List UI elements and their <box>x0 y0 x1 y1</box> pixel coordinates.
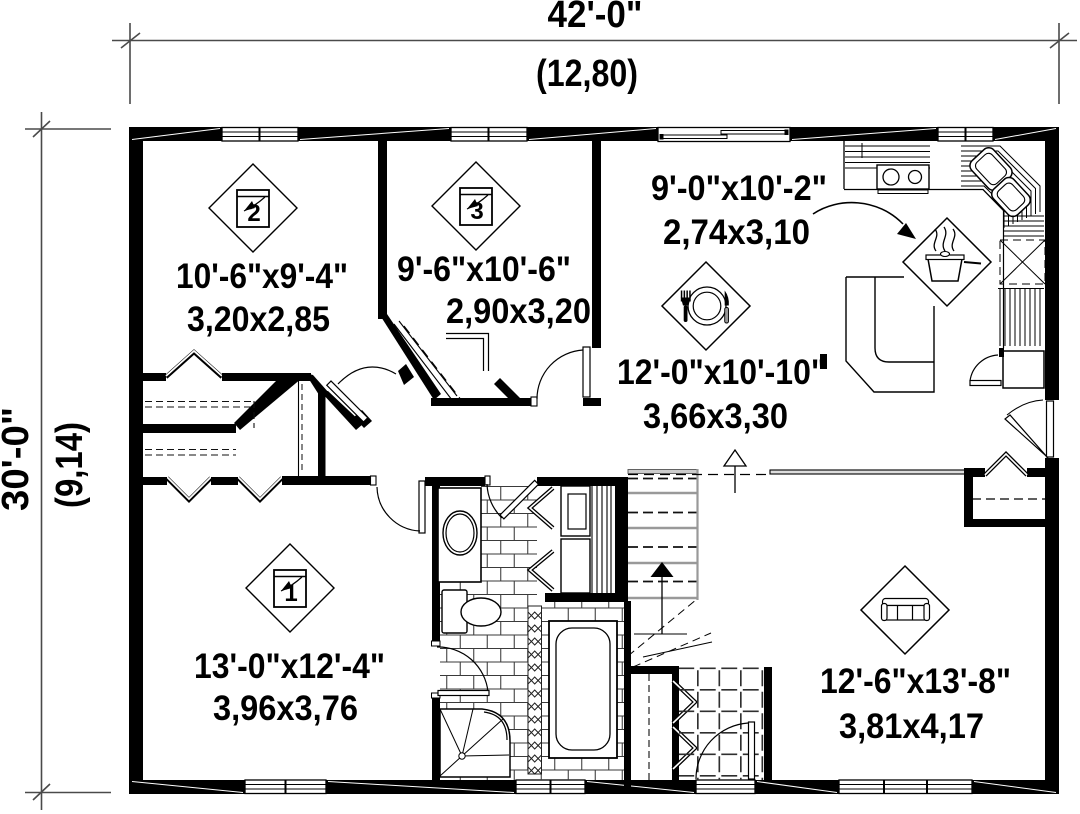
svg-text:3: 3 <box>470 198 483 225</box>
svg-text:12'-6"x13'-8": 12'-6"x13'-8" <box>820 662 1011 701</box>
svg-text:(12,80): (12,80) <box>536 53 638 95</box>
svg-text:9'-6"x10'-6": 9'-6"x10'-6" <box>397 250 571 289</box>
svg-text:30'-0": 30'-0" <box>0 407 37 511</box>
svg-text:3,20x2,85: 3,20x2,85 <box>187 300 330 339</box>
svg-text:9'-0"x10'-2": 9'-0"x10'-2" <box>651 169 827 208</box>
svg-text:2,90x3,20: 2,90x3,20 <box>446 292 591 331</box>
svg-text:13'-0"x12'-4": 13'-0"x12'-4" <box>194 647 385 686</box>
svg-text:10'-6"x9'-4": 10'-6"x9'-4" <box>176 257 348 296</box>
svg-text:3,96x3,76: 3,96x3,76 <box>213 689 358 728</box>
svg-text:(9,14): (9,14) <box>49 422 91 508</box>
svg-text:3,81x4,17: 3,81x4,17 <box>839 707 984 746</box>
svg-text:3,66x3,30: 3,66x3,30 <box>643 397 788 436</box>
svg-text:42'-0": 42'-0" <box>548 0 643 36</box>
svg-text:2: 2 <box>247 200 260 227</box>
svg-text:2,74x3,10: 2,74x3,10 <box>663 213 810 252</box>
svg-text:12'-0"x10'-10": 12'-0"x10'-10" <box>617 353 826 392</box>
svg-text:1: 1 <box>284 580 297 607</box>
